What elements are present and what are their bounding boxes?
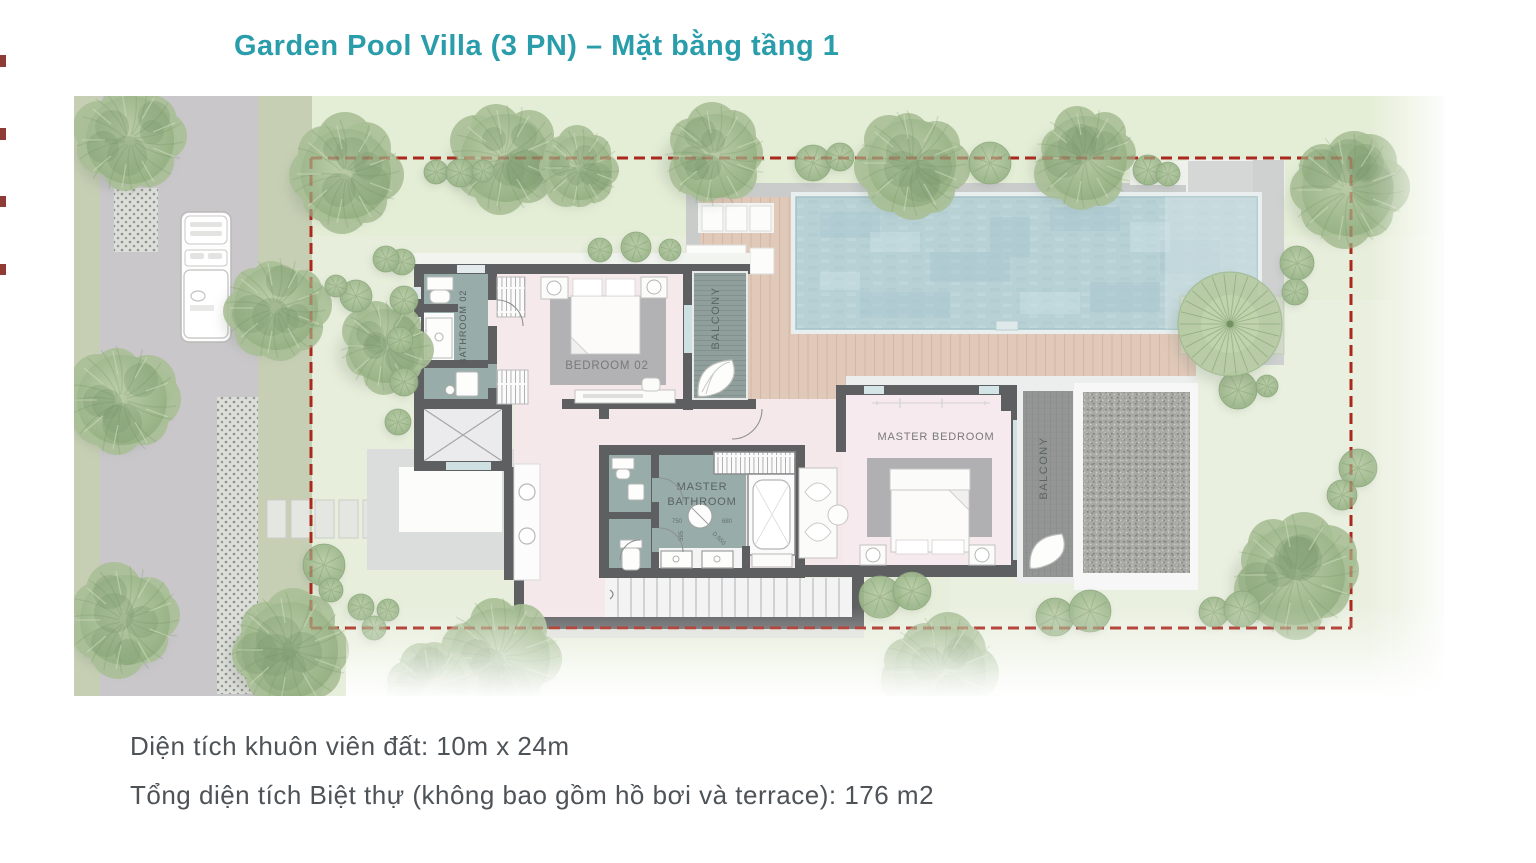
svg-text:BALCONY: BALCONY [710,286,722,349]
svg-text:BALCONY: BALCONY [1038,436,1050,499]
svg-text:BATHROOM 02: BATHROOM 02 [458,290,468,365]
svg-text:MASTER: MASTER [677,481,728,493]
svg-text:750: 750 [672,519,683,525]
svg-text:BEDROOM 02: BEDROOM 02 [565,360,648,372]
svg-text:BATHROOM: BATHROOM [667,496,736,508]
svg-text:680: 680 [722,519,733,525]
svg-text:MASTER BEDROOM: MASTER BEDROOM [878,431,995,443]
